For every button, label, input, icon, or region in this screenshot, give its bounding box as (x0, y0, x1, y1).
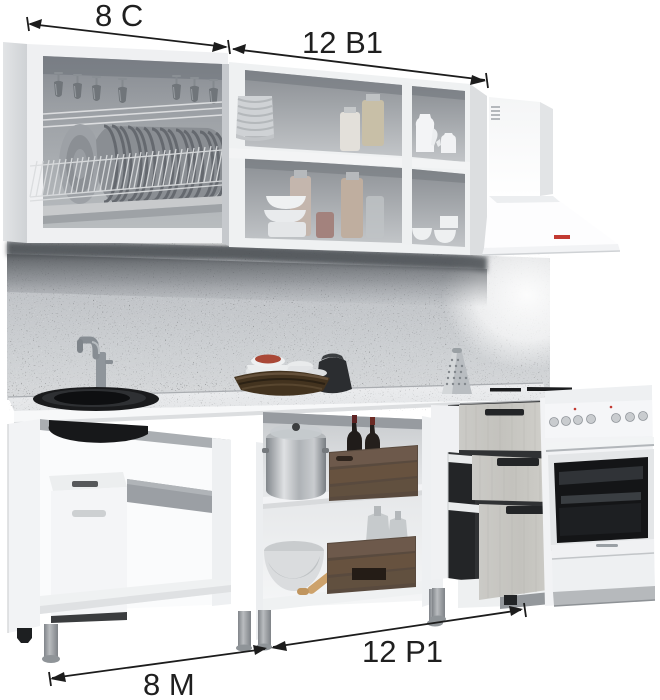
svg-text:8 M: 8 M (143, 667, 195, 700)
svg-text:12 P1: 12 P1 (362, 634, 443, 669)
svg-text:12 B1: 12 B1 (302, 25, 383, 60)
svg-text:8 C: 8 C (95, 0, 143, 33)
